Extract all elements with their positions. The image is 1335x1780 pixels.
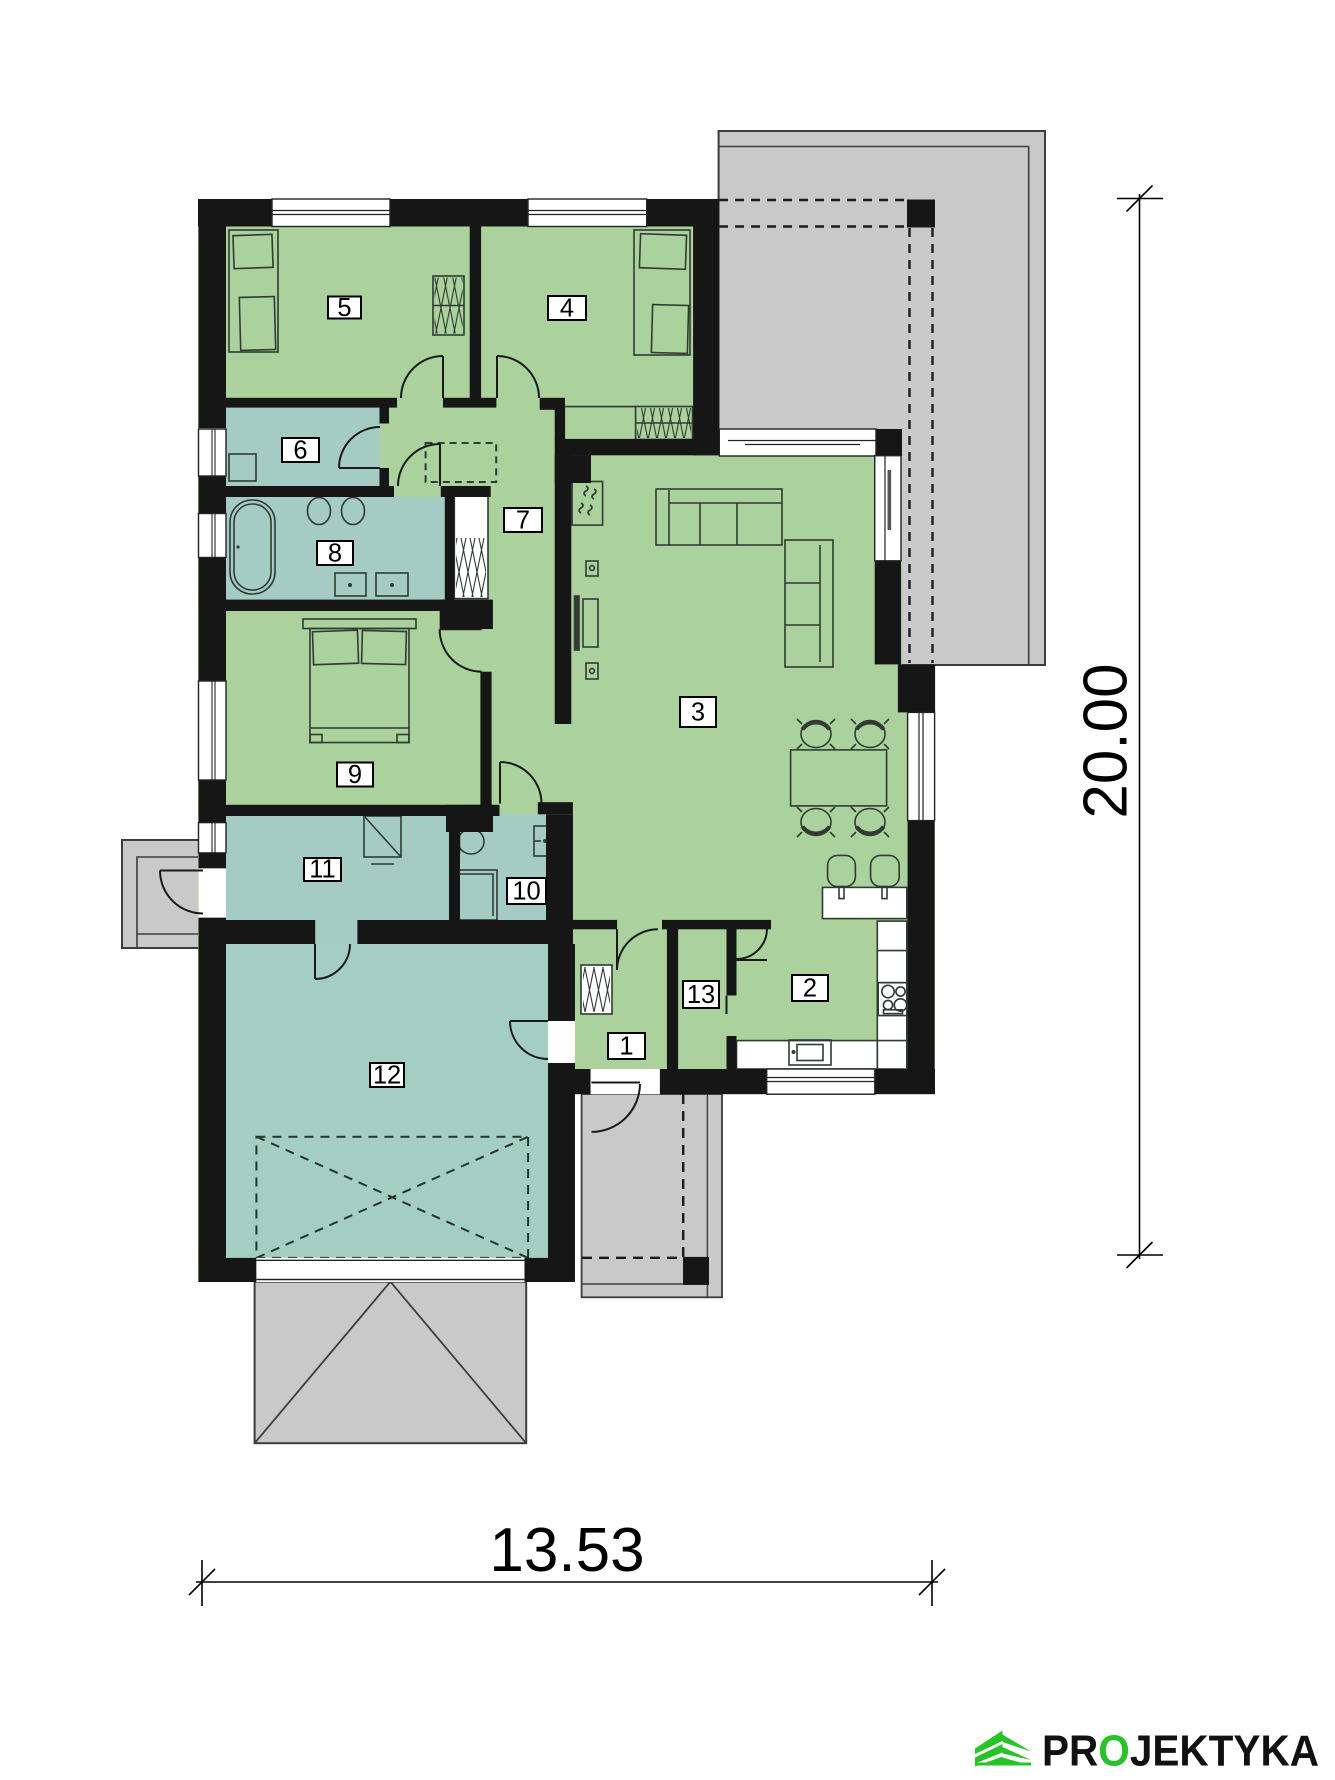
svg-text:13: 13 (687, 981, 715, 1009)
svg-text:6: 6 (293, 437, 307, 465)
svg-text:3: 3 (691, 699, 705, 727)
svg-text:10: 10 (512, 878, 540, 906)
svg-text:12: 12 (373, 1062, 401, 1090)
svg-text:5: 5 (337, 294, 351, 322)
svg-text:1: 1 (619, 1033, 633, 1061)
svg-text:PROJEKTYKA: PROJEKTYKA (1042, 1727, 1319, 1776)
svg-text:13.53: 13.53 (489, 1516, 644, 1585)
svg-text:7: 7 (516, 507, 530, 535)
svg-text:8: 8 (328, 540, 342, 568)
svg-text:2: 2 (803, 975, 817, 1003)
svg-text:4: 4 (560, 295, 574, 323)
svg-text:11: 11 (309, 856, 335, 884)
svg-text:9: 9 (348, 761, 362, 789)
svg-text:20.00: 20.00 (1072, 663, 1141, 818)
